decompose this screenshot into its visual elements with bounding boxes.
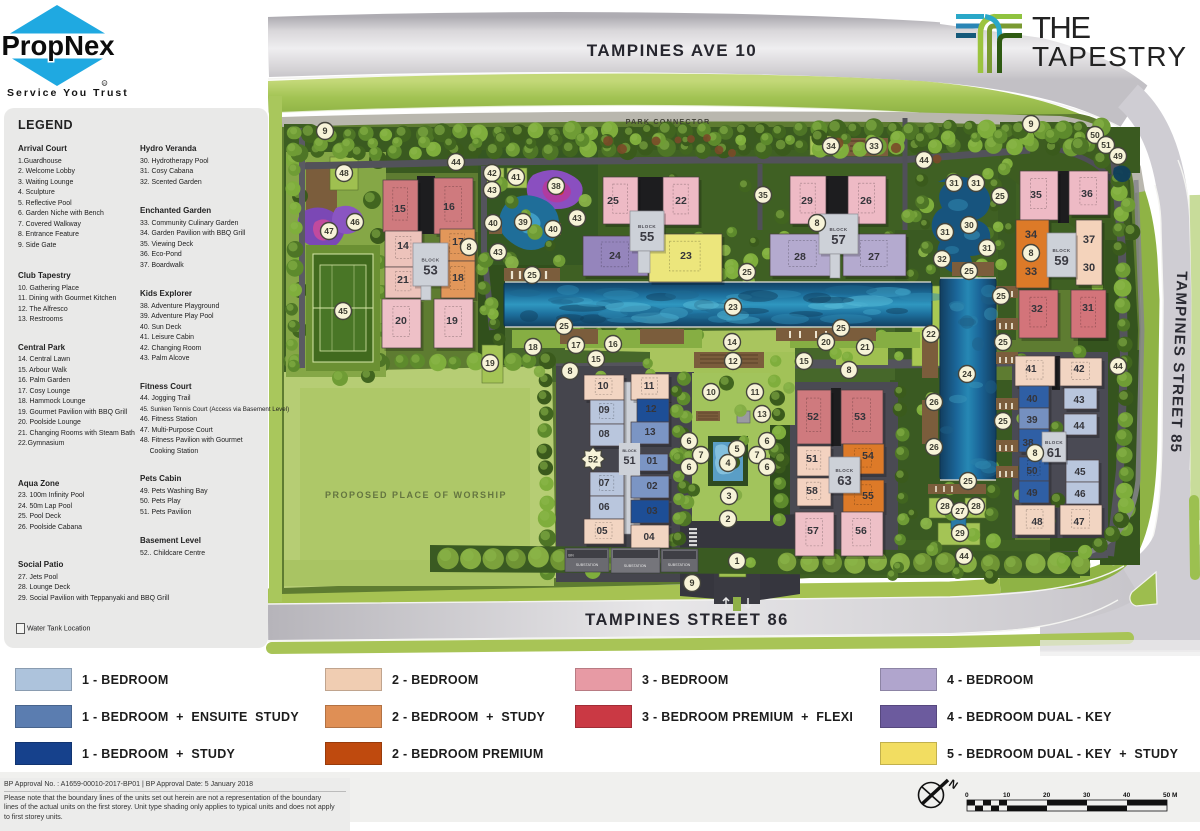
svg-text:25: 25 (998, 416, 1008, 426)
svg-text:17: 17 (571, 340, 581, 350)
svg-text:39: 39 (518, 217, 528, 227)
svg-text:63: 63 (837, 473, 851, 488)
svg-text:6: 6 (764, 436, 769, 446)
svg-text:11: 11 (644, 381, 655, 392)
svg-text:7: 7 (698, 450, 703, 460)
svg-text:43: 43 (1073, 395, 1085, 406)
svg-text:R: R (103, 82, 106, 86)
svg-text:15: 15 (591, 354, 601, 364)
svg-text:8: 8 (1032, 448, 1037, 458)
svg-text:28: 28 (940, 501, 950, 511)
svg-text:16: 16 (443, 201, 455, 213)
svg-text:30: 30 (1083, 262, 1095, 274)
svg-text:49: 49 (1026, 488, 1038, 499)
svg-text:PropNex: PropNex (1, 30, 115, 61)
svg-text:SUBSTATION: SUBSTATION (668, 563, 691, 567)
svg-text:16: 16 (608, 339, 618, 349)
svg-text:09: 09 (598, 405, 610, 416)
svg-text:14: 14 (397, 240, 409, 252)
svg-text:51: 51 (806, 453, 818, 465)
svg-text:53: 53 (854, 411, 866, 423)
svg-text:11: 11 (751, 387, 760, 397)
svg-text:Service You Trust: Service You Trust (7, 87, 129, 99)
svg-text:32: 32 (1031, 303, 1043, 315)
svg-text:15: 15 (394, 203, 406, 215)
svg-text:35: 35 (758, 190, 768, 200)
svg-text:28: 28 (971, 501, 981, 511)
svg-text:44: 44 (959, 551, 969, 561)
svg-text:08: 08 (598, 429, 610, 440)
svg-text:25: 25 (998, 337, 1008, 347)
svg-text:SUBSTATION: SUBSTATION (576, 563, 599, 567)
svg-text:50: 50 (1090, 130, 1100, 140)
svg-text:46: 46 (350, 217, 360, 227)
svg-text:2: 2 (725, 514, 730, 524)
svg-text:44: 44 (1113, 361, 1123, 371)
svg-text:6: 6 (686, 462, 691, 472)
svg-text:8: 8 (567, 366, 572, 376)
svg-text:12: 12 (728, 356, 738, 366)
svg-text:35: 35 (1030, 189, 1042, 201)
svg-text:5: 5 (734, 444, 739, 454)
svg-text:57: 57 (831, 232, 845, 247)
svg-text:19: 19 (446, 315, 458, 327)
svg-text:44: 44 (919, 155, 929, 165)
svg-text:39: 39 (1026, 415, 1038, 426)
svg-text:22: 22 (675, 195, 687, 207)
svg-text:26: 26 (929, 397, 939, 407)
svg-text:41: 41 (511, 172, 521, 182)
svg-text:41: 41 (1025, 364, 1037, 375)
svg-text:20: 20 (1043, 792, 1051, 799)
svg-text:10: 10 (706, 387, 716, 397)
svg-text:8: 8 (814, 218, 819, 228)
svg-text:47: 47 (324, 226, 334, 236)
svg-text:42: 42 (487, 168, 497, 178)
svg-text:26: 26 (860, 195, 872, 207)
svg-text:25: 25 (607, 195, 619, 207)
svg-text:27: 27 (868, 251, 880, 263)
svg-text:40: 40 (1123, 792, 1131, 799)
svg-text:22: 22 (926, 329, 936, 339)
svg-text:9: 9 (322, 126, 327, 136)
svg-text:46: 46 (1074, 489, 1086, 500)
svg-text:57: 57 (807, 525, 819, 537)
svg-text:45: 45 (338, 306, 348, 316)
svg-text:TAMPINES STREET 86: TAMPINES STREET 86 (585, 611, 789, 629)
svg-text:34: 34 (1025, 229, 1038, 241)
svg-text:8: 8 (846, 365, 851, 375)
svg-text:32: 32 (937, 254, 947, 264)
svg-text:13: 13 (757, 409, 767, 419)
svg-text:05: 05 (596, 526, 608, 537)
svg-text:21: 21 (397, 274, 409, 286)
svg-text:33: 33 (1025, 266, 1037, 278)
svg-text:30: 30 (1083, 792, 1091, 799)
svg-text:8: 8 (1028, 248, 1033, 258)
svg-text:25: 25 (742, 267, 752, 277)
svg-text:21: 21 (860, 342, 870, 352)
svg-text:51: 51 (1101, 140, 1111, 150)
svg-text:31: 31 (971, 178, 981, 188)
svg-text:30: 30 (964, 220, 974, 230)
svg-text:52: 52 (588, 455, 598, 465)
svg-text:53: 53 (423, 263, 437, 278)
svg-text:52: 52 (807, 411, 819, 423)
svg-text:31: 31 (949, 178, 959, 188)
svg-text:37: 37 (1083, 234, 1095, 246)
svg-text:36: 36 (1081, 188, 1093, 200)
svg-text:6: 6 (686, 436, 691, 446)
svg-text:15: 15 (799, 356, 809, 366)
svg-text:14: 14 (727, 337, 737, 347)
svg-text:25: 25 (995, 191, 1005, 201)
svg-text:07: 07 (598, 478, 610, 489)
svg-text:01: 01 (646, 456, 658, 467)
svg-text:58: 58 (806, 485, 818, 497)
svg-text:TAPESTRY: TAPESTRY (1032, 41, 1186, 72)
svg-text:49: 49 (1113, 151, 1123, 161)
svg-text:50 M: 50 M (1163, 792, 1177, 799)
svg-text:38: 38 (551, 181, 561, 191)
svg-text:25: 25 (559, 321, 569, 331)
svg-text:10: 10 (597, 381, 609, 392)
svg-text:18: 18 (452, 272, 464, 284)
svg-text:18: 18 (528, 342, 538, 352)
svg-text:61: 61 (1047, 445, 1061, 460)
svg-text:55: 55 (640, 229, 654, 244)
svg-text:40: 40 (488, 218, 498, 228)
svg-text:PROPOSED PLACE OF WORSHIP: PROPOSED PLACE OF WORSHIP (325, 490, 507, 500)
svg-text:31: 31 (940, 227, 950, 237)
svg-text:48: 48 (339, 168, 349, 178)
svg-text:44: 44 (1073, 421, 1085, 432)
svg-text:10: 10 (1003, 792, 1011, 799)
svg-text:43: 43 (572, 213, 582, 223)
svg-text:7: 7 (754, 450, 759, 460)
svg-text:20: 20 (395, 315, 407, 327)
svg-text:BIN: BIN (568, 554, 574, 558)
svg-text:59: 59 (1054, 253, 1068, 268)
svg-text:27: 27 (955, 506, 965, 516)
svg-text:33: 33 (869, 141, 879, 151)
svg-text:25: 25 (964, 266, 974, 276)
svg-text:45: 45 (1074, 467, 1086, 478)
svg-text:55: 55 (862, 490, 874, 502)
svg-text:1: 1 (734, 556, 739, 566)
svg-text:03: 03 (646, 506, 658, 517)
svg-text:34: 34 (826, 141, 836, 151)
svg-text:50: 50 (1026, 466, 1038, 477)
svg-text:23: 23 (680, 250, 692, 262)
svg-text:47: 47 (1073, 517, 1085, 528)
svg-text:6: 6 (764, 462, 769, 472)
svg-text:4: 4 (725, 458, 730, 468)
svg-text:9: 9 (1028, 119, 1033, 129)
svg-text:54: 54 (862, 450, 874, 462)
svg-text:24: 24 (609, 250, 621, 262)
svg-text:25: 25 (996, 291, 1006, 301)
svg-text:26: 26 (929, 442, 939, 452)
svg-text:23: 23 (728, 302, 738, 312)
svg-text:40: 40 (548, 224, 558, 234)
svg-text:42: 42 (1073, 364, 1085, 375)
svg-text:29: 29 (801, 195, 813, 207)
svg-text:25: 25 (836, 323, 846, 333)
svg-text:19: 19 (485, 358, 495, 368)
svg-text:N: N (946, 778, 959, 792)
svg-text:13: 13 (644, 427, 656, 438)
svg-text:31: 31 (1082, 302, 1094, 314)
svg-text:43: 43 (487, 185, 497, 195)
svg-text:40: 40 (1026, 394, 1038, 405)
svg-text:TAMPINES AVE 10: TAMPINES AVE 10 (587, 41, 758, 60)
svg-text:12: 12 (645, 404, 657, 415)
svg-text:43: 43 (493, 247, 503, 257)
svg-text:48: 48 (1031, 517, 1043, 528)
svg-text:44: 44 (451, 157, 461, 167)
svg-text:SUBSTATION: SUBSTATION (624, 564, 647, 568)
svg-text:20: 20 (821, 337, 831, 347)
svg-text:9: 9 (689, 578, 694, 588)
svg-text:8: 8 (466, 242, 471, 252)
svg-text:31: 31 (982, 243, 992, 253)
svg-text:29: 29 (955, 528, 965, 538)
svg-text:28: 28 (794, 251, 806, 263)
svg-text:24: 24 (962, 369, 972, 379)
svg-text:3: 3 (726, 491, 731, 501)
svg-text:06: 06 (598, 502, 610, 513)
svg-text:02: 02 (646, 481, 658, 492)
svg-text:THE: THE (1032, 10, 1091, 45)
svg-text:56: 56 (855, 525, 867, 537)
svg-text:25: 25 (527, 270, 537, 280)
svg-text:0: 0 (965, 792, 969, 799)
svg-text:04: 04 (643, 532, 655, 543)
svg-text:25: 25 (963, 476, 973, 486)
svg-text:51: 51 (623, 455, 635, 467)
svg-text:BLOCK: BLOCK (622, 448, 636, 453)
